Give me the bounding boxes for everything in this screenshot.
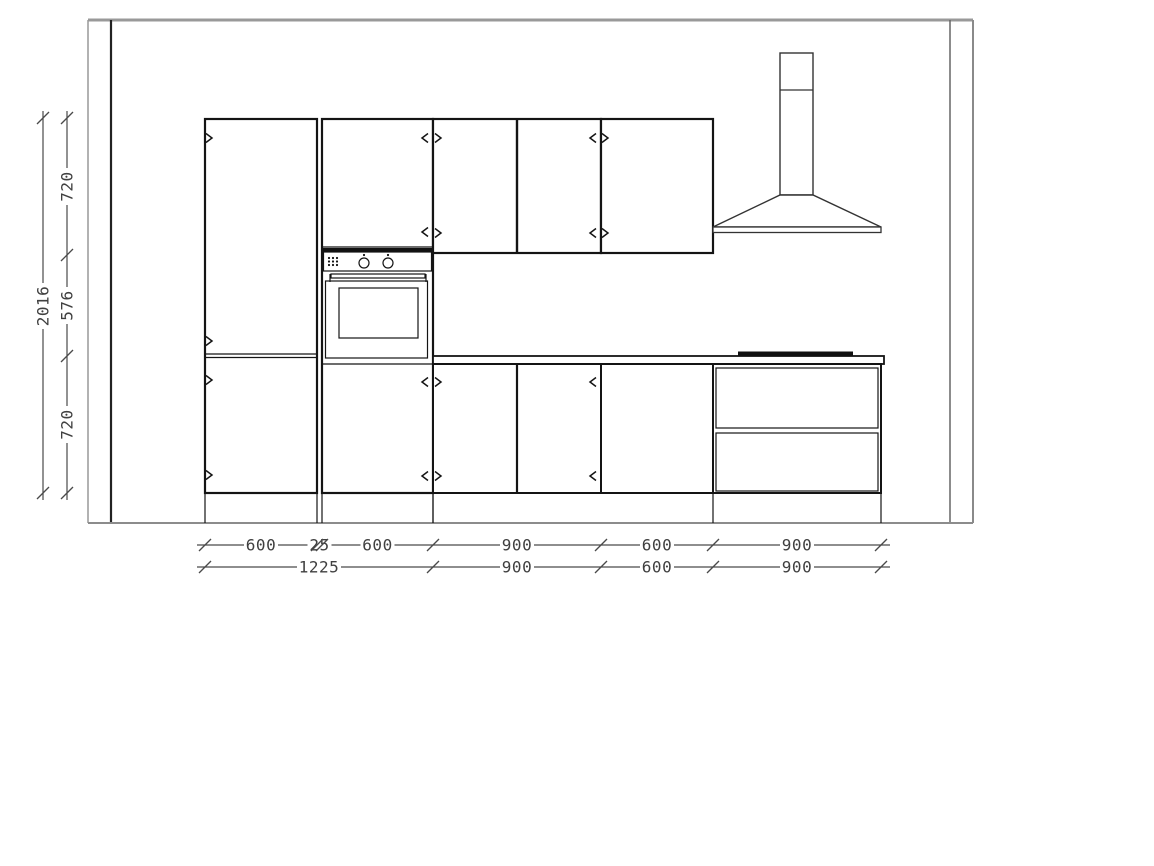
dim-label: 600 (642, 558, 672, 577)
dim-label-wall-cabinet-height: 720 (58, 171, 77, 201)
base-cabinet-900 (433, 364, 601, 493)
countertop (433, 356, 884, 364)
countertop-slab (433, 356, 884, 364)
wall-cabinet-600-body (601, 119, 713, 253)
dimension-bottom-row2: 1225 900 600 900 (197, 558, 890, 577)
dim-label: 600 (362, 536, 392, 555)
dim-label: 900 (502, 558, 532, 577)
dim-label: 25 (309, 536, 329, 555)
oven-housing (322, 119, 433, 523)
dimension-left-segments: 720 576 720 (58, 111, 77, 500)
dim-label: 600 (246, 536, 276, 555)
base-cabinet-600 (601, 364, 713, 493)
dimension-left-overall: 2016 (34, 111, 53, 500)
dim-label: 1225 (299, 558, 340, 577)
dim-label-base-cabinet-height: 720 (58, 409, 77, 439)
cooktop (738, 352, 853, 357)
cooker-hood (713, 53, 881, 233)
dimension-bottom-row1: 600 25 600 900 600 900 (197, 536, 890, 555)
dim-label: 900 (782, 558, 812, 577)
dim-label: 900 (502, 536, 532, 555)
dim-label: 900 (782, 536, 812, 555)
oven-top-trim (323, 248, 432, 252)
tall-cabinet (205, 119, 317, 523)
dim-label-overall-height: 2016 (34, 286, 53, 327)
wall-cabinet-900 (433, 119, 601, 253)
hood-chimney (780, 53, 813, 195)
oven-vent-dots (328, 257, 338, 266)
hood-bottom-plate (713, 227, 881, 233)
kitchen-elevation-drawing: 2016 720 576 720 600 25 600 900 600 900 (0, 0, 1154, 866)
tall-cabinet-body (205, 119, 317, 493)
base-cabinet-600-body (601, 364, 713, 493)
cooktop-hob (738, 352, 853, 357)
dim-label-backsplash-height: 576 (58, 290, 77, 320)
drawer-base-unit (713, 364, 881, 523)
dim-label: 600 (642, 536, 672, 555)
hood-canopy (713, 195, 881, 227)
wall-cabinet-600 (601, 119, 713, 253)
